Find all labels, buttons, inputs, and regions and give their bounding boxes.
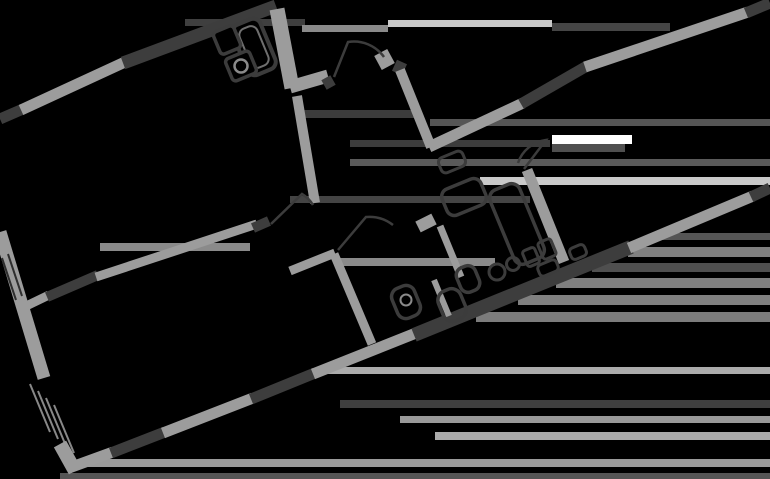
- smear-band: [480, 177, 770, 185]
- smear-band: [302, 25, 388, 32]
- smear-band: [476, 312, 770, 322]
- smear-band: [435, 432, 770, 440]
- smear-band: [400, 416, 770, 423]
- smear-band: [290, 196, 530, 203]
- smear-band: [340, 400, 770, 408]
- smear-band: [88, 459, 770, 467]
- smear-band: [592, 263, 770, 272]
- smear-band: [320, 367, 770, 374]
- wall-segment: [418, 219, 434, 227]
- smear-band: [302, 110, 417, 118]
- wall-segment: [253, 221, 269, 228]
- smear-band: [60, 473, 770, 479]
- wall-segment: [324, 80, 333, 85]
- smear-band: [518, 295, 770, 305]
- smear-band: [628, 247, 770, 257]
- smear-band: [350, 159, 770, 166]
- floor-plan-svg: [0, 0, 770, 479]
- smear-band: [552, 144, 625, 152]
- smear-band: [552, 135, 632, 144]
- smear-band: [556, 278, 770, 288]
- smear-band: [660, 233, 770, 240]
- wall-segment: [378, 56, 391, 63]
- smear-band: [552, 23, 670, 31]
- smear-band: [388, 20, 552, 27]
- floor-plan-image: [0, 0, 770, 479]
